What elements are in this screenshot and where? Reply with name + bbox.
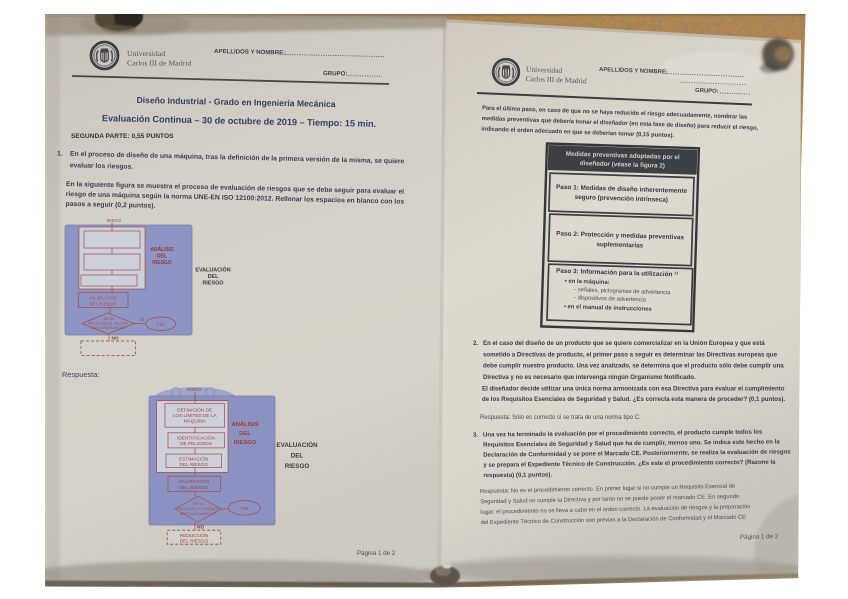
svg-text:2.: 2. <box>473 340 478 347</box>
svg-text:suplementarias: suplementarias <box>596 241 644 249</box>
svg-text:SEGUNDA PARTE: 0,55 PUNTOS: SEGUNDA PARTE: 0,55 PUNTOS <box>71 133 174 140</box>
svg-text:Página 1 de 2: Página 1 de 2 <box>357 550 396 557</box>
svg-text:ANÁLISIS: ANÁLISIS <box>150 246 174 253</box>
svg-text:En el caso del diseño de un pr: En el caso del diseño de un producto que… <box>483 340 765 347</box>
svg-text:INICIO: INICIO <box>107 218 121 223</box>
svg-text:REDUCIDO EL RIESGO: REDUCIDO EL RIESGO <box>88 322 129 326</box>
svg-text:RIESGO: RIESGO <box>285 463 310 470</box>
svg-text:DEFINICIÓN DE: DEFINICIÓN DE <box>177 407 212 413</box>
svg-text:DE PELIGROS: DE PELIGROS <box>180 441 212 446</box>
svg-text:Página 1 de 2: Página 1 de 2 <box>740 533 779 541</box>
svg-text:Carlos III de Madrid: Carlos III de Madrid <box>127 59 191 68</box>
svg-text:FIN: FIN <box>241 506 249 512</box>
svg-text:de los Requisitos Esenciales d: de los Requisitos Esenciales de Segurida… <box>482 396 785 403</box>
svg-text:ESTIMACIÓN: ESTIMACIÓN <box>179 455 208 461</box>
svg-text:Respuesta:: Respuesta: <box>62 370 99 379</box>
svg-text:El diseñador decide utilizar u: El diseñador decide utilizar una única n… <box>482 386 785 393</box>
svg-text:EVALUACIÓN: EVALUACIÓN <box>276 440 318 449</box>
svg-text:RIESGO: RIESGO <box>234 440 257 446</box>
svg-text:DEL: DEL <box>208 274 219 280</box>
svg-text:INICIO: INICIO <box>187 387 201 392</box>
svg-text:DEL RIESGO: DEL RIESGO <box>180 485 209 490</box>
svg-text:DEL RIESGO: DEL RIESGO <box>90 302 117 307</box>
svg-text:APELLIDOS Y NOMBRE:: APELLIDOS Y NOMBRE: <box>214 48 285 56</box>
svg-text:Respuesta: Sólo es correcto si: Respuesta: Sólo es correcto si se trata … <box>480 415 641 421</box>
svg-text:LOS LÍMITES DE LA: LOS LÍMITES DE LA <box>173 412 218 418</box>
svg-text:respuesta) (0,1 puntos).: respuesta) (0,1 puntos). <box>483 471 552 479</box>
svg-text:DEL: DEL <box>157 254 167 260</box>
svg-text:RIESGO: RIESGO <box>203 281 224 287</box>
svg-text:GRUPO:: GRUPO: <box>323 70 348 78</box>
svg-text:GRUPO:: GRUPO: <box>695 88 719 95</box>
svg-text:DEL RIESGO: DEL RIESGO <box>180 538 209 543</box>
svg-text:1.: 1. <box>57 151 63 158</box>
svg-text:EVALUACIÓN: EVALUACIÓN <box>195 266 230 274</box>
svg-text:DEL: DEL <box>239 431 251 437</box>
svg-text:REDUCIDO EL RIESGO: REDUCIDO EL RIESGO <box>177 507 219 511</box>
svg-text:DEL RIESGO: DEL RIESGO <box>179 462 208 467</box>
svg-text:ADECUADAMENTE?: ADECUADAMENTE? <box>180 512 217 516</box>
svg-text:evaluar los riesgos.: evaluar los riesgos. <box>70 162 134 170</box>
svg-text:VALORACIÓN: VALORACIÓN <box>89 296 117 301</box>
svg-text:Directiva y no es necesario qu: Directiva y no es necesario que interven… <box>483 374 696 381</box>
svg-text:ANÁLISIS: ANÁLISIS <box>231 421 258 428</box>
svg-text:RIESGO: RIESGO <box>152 260 172 266</box>
svg-text:FIN: FIN <box>157 322 164 327</box>
svg-text:MÁQUINA: MÁQUINA <box>184 418 207 424</box>
svg-text:DEL: DEL <box>291 453 304 460</box>
svg-text:¿SE HA: ¿SE HA <box>191 502 205 506</box>
svg-text:¿SE HA: ¿SE HA <box>101 317 115 321</box>
svg-text:3.: 3. <box>473 432 478 439</box>
svg-text:VALORACIÓN: VALORACIÓN <box>179 478 209 484</box>
svg-text:debe cumplir nuestro producto.: debe cumplir nuestro producto. Una vez a… <box>483 363 784 370</box>
svg-text:ADECUADAMENTE?: ADECUADAMENTE? <box>90 326 125 330</box>
svg-text:sometido a Directivas de produ: sometido a Directivas de producto, el pr… <box>483 351 778 358</box>
svg-text:IDENTIFICACIÓN: IDENTIFICACIÓN <box>177 435 215 441</box>
svg-text:NO: NO <box>197 525 204 531</box>
svg-text:Universidad: Universidad <box>127 49 165 58</box>
svg-text:REDUCCIÓN: REDUCCIÓN <box>180 532 208 538</box>
